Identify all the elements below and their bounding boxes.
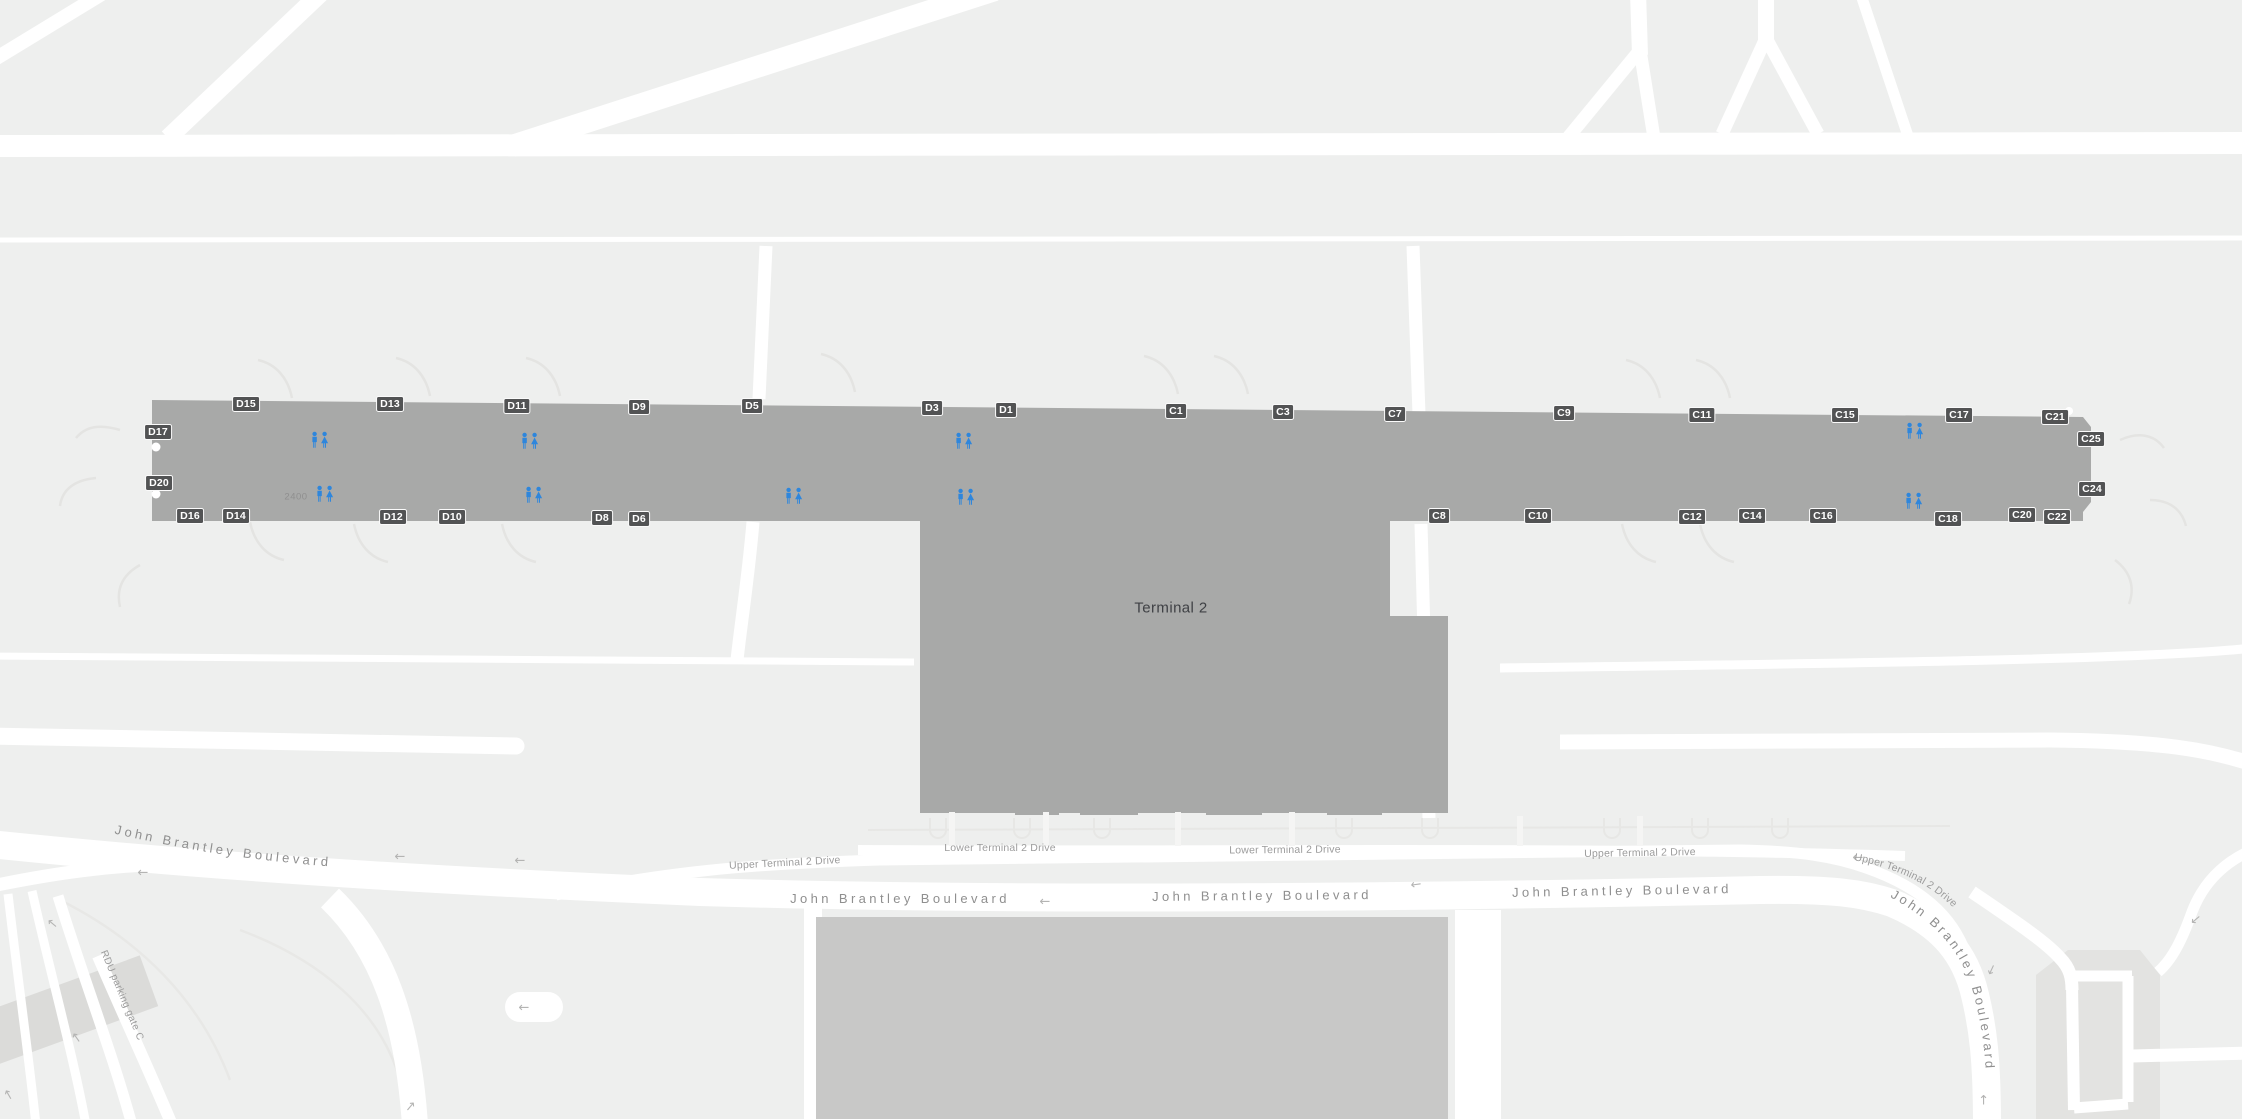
gate-label-C11[interactable]: C11 xyxy=(1688,407,1715,423)
room-number-label: 2400 xyxy=(284,492,307,503)
restroom-icon[interactable] xyxy=(956,489,976,506)
map-dot xyxy=(152,443,161,452)
gate-label-D8[interactable]: D8 xyxy=(591,510,613,526)
gate-label-D13[interactable]: D13 xyxy=(376,396,404,412)
gate-label-C20[interactable]: C20 xyxy=(2008,507,2036,523)
road-label: John Brantley Boulevard xyxy=(1889,886,1998,1071)
gate-label-D5[interactable]: D5 xyxy=(741,398,763,414)
gate-label-D11[interactable]: D11 xyxy=(503,398,530,414)
gate-label-C8[interactable]: C8 xyxy=(1428,508,1450,524)
restroom-figures-icon xyxy=(1905,423,1925,440)
gate-label-C9[interactable]: C9 xyxy=(1553,405,1575,421)
gate-label-D15[interactable]: D15 xyxy=(232,396,260,412)
restroom-figures-icon xyxy=(524,487,544,504)
restroom-figures-icon xyxy=(310,432,330,449)
restroom-figures-icon xyxy=(1904,493,1924,510)
road-label: John Brantley Boulevard xyxy=(1152,887,1372,904)
road-label: John Brantley Boulevard xyxy=(113,822,332,870)
restroom-figures-icon xyxy=(956,489,976,506)
restroom-figures-icon xyxy=(315,486,335,503)
gate-label-C18[interactable]: C18 xyxy=(1934,511,1962,527)
restroom-icon[interactable] xyxy=(524,487,544,504)
gate-label-C1[interactable]: C1 xyxy=(1165,403,1187,419)
road-label: John Brantley Boulevard xyxy=(790,891,1010,906)
restroom-icon[interactable] xyxy=(310,432,330,449)
gate-label-C24[interactable]: C24 xyxy=(2078,481,2106,497)
gate-label-C16[interactable]: C16 xyxy=(1809,508,1837,524)
gate-label-C7[interactable]: C7 xyxy=(1384,406,1406,422)
gate-label-C15[interactable]: C15 xyxy=(1831,407,1859,423)
gate-label-C17[interactable]: C17 xyxy=(1945,407,1973,423)
gate-label-D17[interactable]: D17 xyxy=(144,424,172,440)
restroom-figures-icon xyxy=(784,488,804,505)
gate-label-C12[interactable]: C12 xyxy=(1678,509,1706,525)
gate-label-D10[interactable]: D10 xyxy=(438,509,466,525)
road-label-layer: John Brantley BoulevardJohn Brantley Bou… xyxy=(0,0,2242,1119)
restroom-icon[interactable] xyxy=(1905,423,1925,440)
gate-label-D12[interactable]: D12 xyxy=(379,509,407,525)
road-label: Lower Terminal 2 Drive xyxy=(1229,844,1341,857)
gate-label-D16[interactable]: D16 xyxy=(176,508,204,524)
road-label: Upper Terminal 2 Drive xyxy=(729,854,841,872)
road-label: John Brantley Boulevard xyxy=(1512,881,1732,900)
map-canvas[interactable]: John Brantley BoulevardJohn Brantley Bou… xyxy=(0,0,2242,1119)
road-label: Lower Terminal 2 Drive xyxy=(944,842,1056,854)
gate-label-D20[interactable]: D20 xyxy=(145,475,173,491)
restroom-icon[interactable] xyxy=(520,433,540,450)
gate-label-C3[interactable]: C3 xyxy=(1272,404,1294,420)
restroom-icon[interactable] xyxy=(315,486,335,503)
gate-label-D9[interactable]: D9 xyxy=(628,399,650,415)
gate-label-C10[interactable]: C10 xyxy=(1524,508,1552,524)
gate-label-C14[interactable]: C14 xyxy=(1738,508,1766,524)
gate-label-D1[interactable]: D1 xyxy=(995,402,1017,418)
restroom-icon[interactable] xyxy=(1904,493,1924,510)
road-label: Upper Terminal 2 Drive xyxy=(1584,846,1696,860)
gate-label-C21[interactable]: C21 xyxy=(2041,409,2069,425)
gate-label-C25[interactable]: C25 xyxy=(2077,431,2105,447)
gate-label-C22[interactable]: C22 xyxy=(2043,509,2071,525)
restroom-figures-icon xyxy=(954,433,974,450)
restroom-figures-icon xyxy=(520,433,540,450)
restroom-icon[interactable] xyxy=(954,433,974,450)
gate-label-D3[interactable]: D3 xyxy=(921,400,943,416)
road-label: RDU parking gate C xyxy=(98,949,146,1043)
gate-label-D14[interactable]: D14 xyxy=(222,508,250,524)
restroom-icon[interactable] xyxy=(784,488,804,505)
terminal-2-label: Terminal 2 xyxy=(1134,600,1207,617)
gate-label-D6[interactable]: D6 xyxy=(628,511,650,527)
